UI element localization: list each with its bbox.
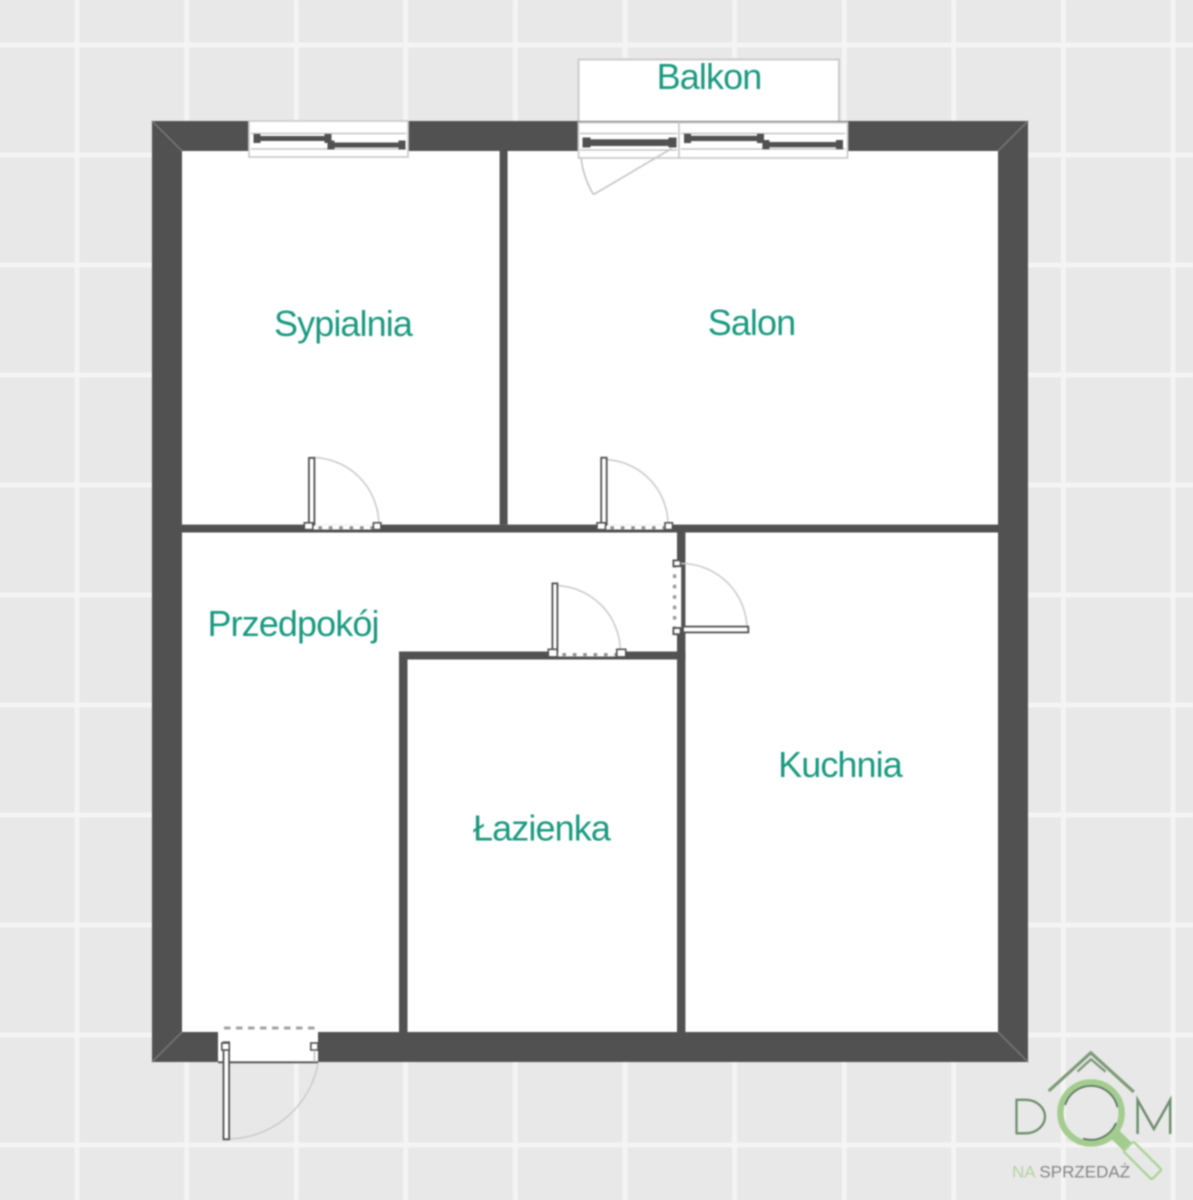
svg-text:Sypialnia: Sypialnia xyxy=(274,303,414,344)
svg-text:Łazienka: Łazienka xyxy=(473,807,612,848)
svg-text:Salon: Salon xyxy=(708,302,796,343)
svg-text:Kuchnia: Kuchnia xyxy=(778,744,904,785)
svg-text:NA SPRZEDAŻ: NA SPRZEDAŻ xyxy=(1012,1163,1130,1182)
svg-text:Balkon: Balkon xyxy=(657,56,762,97)
svg-text:Przedpokój: Przedpokój xyxy=(207,603,378,644)
